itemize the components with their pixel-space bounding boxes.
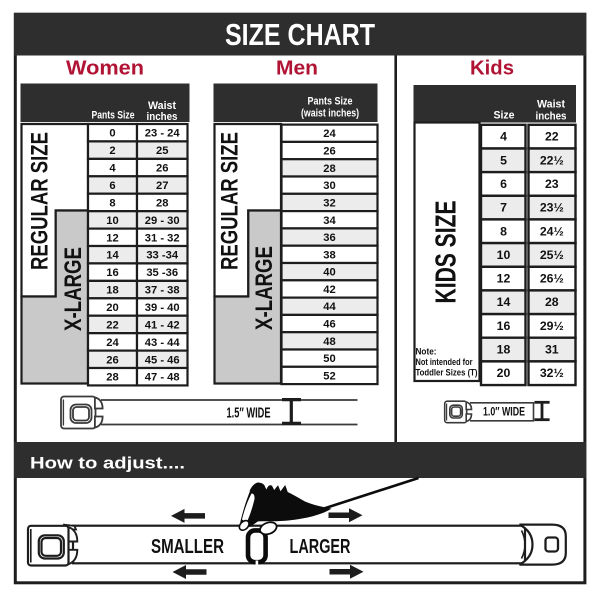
svg-text:4: 4 xyxy=(500,130,507,144)
svg-text:22½: 22½ xyxy=(540,153,564,167)
svg-text:32: 32 xyxy=(323,198,335,210)
svg-text:LARGER: LARGER xyxy=(290,536,351,558)
svg-text:27: 27 xyxy=(156,180,168,192)
svg-text:22: 22 xyxy=(106,319,118,331)
svg-text:2: 2 xyxy=(109,145,115,157)
svg-text:31: 31 xyxy=(545,343,559,357)
svg-text:40: 40 xyxy=(323,267,335,279)
svg-text:26½: 26½ xyxy=(540,272,564,286)
svg-text:Note:: Note: xyxy=(416,347,437,357)
svg-text:12: 12 xyxy=(106,232,118,244)
svg-text:14: 14 xyxy=(497,295,511,309)
svg-text:23: 23 xyxy=(545,177,559,191)
svg-text:23 - 24: 23 - 24 xyxy=(145,128,181,140)
svg-text:28: 28 xyxy=(323,163,335,175)
svg-text:Toddler Sizes (T): Toddler Sizes (T) xyxy=(416,368,478,378)
svg-text:35 -36: 35 -36 xyxy=(146,267,178,279)
svg-text:48: 48 xyxy=(323,336,335,348)
svg-text:4: 4 xyxy=(109,163,116,175)
svg-text:22: 22 xyxy=(545,130,559,144)
svg-text:Not intended for: Not intended for xyxy=(416,357,473,367)
svg-text:28: 28 xyxy=(106,372,118,384)
svg-text:18: 18 xyxy=(106,285,118,297)
svg-text:X-LARGE: X-LARGE xyxy=(60,247,87,331)
svg-text:29½: 29½ xyxy=(540,319,564,333)
svg-text:1.5″ WIDE: 1.5″ WIDE xyxy=(227,406,271,422)
svg-text:How to adjust....: How to adjust.... xyxy=(30,455,185,473)
svg-text:6: 6 xyxy=(109,180,115,192)
svg-text:23½: 23½ xyxy=(540,201,564,215)
svg-text:0: 0 xyxy=(109,128,115,140)
svg-text:34: 34 xyxy=(323,215,336,227)
svg-text:SIZE CHART: SIZE CHART xyxy=(225,17,375,52)
svg-text:1.0″ WIDE: 1.0″ WIDE xyxy=(483,407,525,419)
svg-text:inches: inches xyxy=(147,111,178,123)
svg-text:20: 20 xyxy=(497,366,511,380)
svg-text:7: 7 xyxy=(500,201,507,215)
svg-text:26: 26 xyxy=(156,163,168,175)
svg-text:REGULAR SIZE: REGULAR SIZE xyxy=(217,132,244,270)
svg-text:12: 12 xyxy=(497,272,511,286)
svg-text:6: 6 xyxy=(500,177,507,191)
svg-text:18: 18 xyxy=(497,343,511,357)
svg-text:47 - 48: 47 - 48 xyxy=(145,372,180,384)
svg-text:26: 26 xyxy=(106,354,118,366)
svg-text:Pants Size: Pants Size xyxy=(308,96,353,108)
svg-text:33 -34: 33 -34 xyxy=(146,250,178,262)
svg-text:41 - 42: 41 - 42 xyxy=(145,319,180,331)
svg-text:39 - 40: 39 - 40 xyxy=(145,302,180,314)
svg-text:10: 10 xyxy=(106,215,118,227)
svg-text:Size: Size xyxy=(494,110,515,122)
svg-text:X-LARGE: X-LARGE xyxy=(251,246,278,330)
svg-text:28: 28 xyxy=(156,197,168,209)
svg-text:26: 26 xyxy=(323,146,335,158)
svg-text:32½: 32½ xyxy=(540,366,564,380)
svg-text:REGULAR SIZE: REGULAR SIZE xyxy=(27,132,54,270)
svg-text:31 - 32: 31 - 32 xyxy=(145,232,180,244)
svg-text:42: 42 xyxy=(323,284,335,296)
svg-text:20: 20 xyxy=(106,302,118,314)
svg-text:Kids: Kids xyxy=(470,58,514,80)
svg-text:46: 46 xyxy=(323,319,335,331)
svg-text:25½: 25½ xyxy=(540,248,564,262)
svg-text:52: 52 xyxy=(323,370,335,382)
svg-text:30: 30 xyxy=(323,180,335,192)
svg-text:Women: Women xyxy=(66,58,144,80)
svg-text:10: 10 xyxy=(497,248,511,262)
svg-text:38: 38 xyxy=(323,249,335,261)
svg-text:16: 16 xyxy=(497,319,511,333)
svg-text:43 - 44: 43 - 44 xyxy=(145,337,181,349)
svg-text:29 - 30: 29 - 30 xyxy=(145,215,180,227)
svg-text:(waist inches): (waist inches) xyxy=(301,108,359,120)
svg-text:SMALLER: SMALLER xyxy=(151,536,224,558)
svg-text:25: 25 xyxy=(156,145,168,157)
svg-text:8: 8 xyxy=(109,197,115,209)
svg-text:16: 16 xyxy=(106,267,118,279)
svg-text:24: 24 xyxy=(323,128,336,140)
svg-text:24½: 24½ xyxy=(540,224,564,238)
svg-text:37 - 38: 37 - 38 xyxy=(145,285,180,297)
svg-text:24: 24 xyxy=(106,337,119,349)
svg-text:Men: Men xyxy=(276,58,318,80)
svg-text:36: 36 xyxy=(323,232,335,244)
svg-text:44: 44 xyxy=(323,301,336,313)
svg-text:14: 14 xyxy=(106,250,119,262)
svg-text:inches: inches xyxy=(536,111,567,123)
svg-text:8: 8 xyxy=(500,224,507,238)
svg-text:28: 28 xyxy=(545,295,559,309)
svg-text:Waist: Waist xyxy=(537,99,565,111)
svg-text:45 - 46: 45 - 46 xyxy=(145,354,180,366)
svg-text:Pants Size: Pants Size xyxy=(92,110,135,122)
svg-text:KIDS SIZE: KIDS SIZE xyxy=(431,201,463,304)
svg-text:50: 50 xyxy=(323,353,335,365)
svg-text:5: 5 xyxy=(500,153,507,167)
